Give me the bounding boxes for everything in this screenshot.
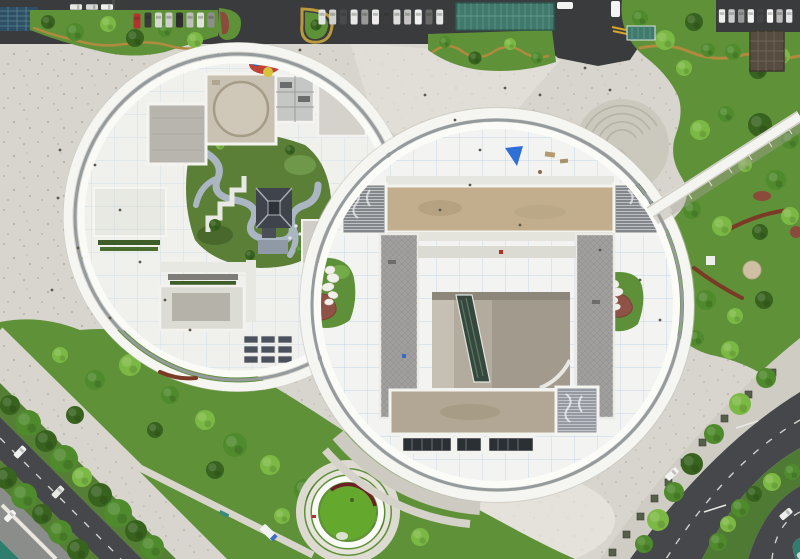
ac-unit: [280, 82, 292, 88]
car: [776, 9, 782, 23]
walkway: [160, 262, 248, 272]
car: [70, 4, 82, 10]
tree: [52, 347, 68, 363]
tree: [72, 467, 92, 487]
garden-light: [284, 155, 316, 175]
tree: [685, 13, 703, 31]
tree: [187, 32, 203, 48]
tree: [727, 308, 743, 324]
corridor-gap: [168, 274, 238, 280]
car: [415, 10, 422, 25]
tree: [223, 433, 247, 457]
car: [361, 10, 368, 25]
tree: [690, 120, 710, 140]
round-platform: [743, 261, 761, 279]
tree: [681, 453, 703, 475]
skylight-strips: [402, 437, 534, 452]
car: [340, 10, 347, 25]
atrium-wall-shadow: [432, 292, 570, 300]
roof-grid: [94, 188, 166, 236]
south-roof-block: [160, 286, 244, 330]
furniture: [294, 224, 297, 227]
tree: [100, 16, 116, 32]
red-marker: [499, 250, 503, 254]
tree: [32, 504, 52, 524]
shrub: [350, 498, 354, 502]
tree: [161, 386, 179, 404]
pavilion-terrace: [258, 240, 288, 254]
hedge-row: [100, 247, 158, 251]
tree: [721, 341, 739, 359]
h-roof-structure: [342, 176, 658, 452]
garden-tree: [209, 219, 221, 231]
central-atrium: [432, 292, 570, 388]
tree: [206, 461, 224, 479]
atrium-ledge: [432, 300, 454, 388]
mechanical-roof-block: [276, 76, 314, 122]
car: [166, 13, 173, 28]
car: [329, 10, 336, 25]
small-canopy: [627, 26, 655, 40]
tree: [729, 393, 751, 415]
helipad-circle: [214, 82, 268, 136]
ac-unit: [298, 96, 310, 102]
car: [404, 10, 411, 25]
car: [176, 13, 183, 28]
mural-yellow: [263, 67, 273, 77]
car: [383, 10, 390, 25]
tree: [66, 23, 84, 41]
tree: [48, 520, 72, 544]
tree: [676, 60, 692, 76]
car: [208, 13, 215, 28]
tree: [725, 44, 741, 60]
tree: [701, 43, 715, 57]
car: [187, 13, 194, 28]
right-circle-building: [300, 108, 694, 502]
car: [319, 10, 326, 25]
concrete-stain: [418, 200, 462, 216]
tree: [763, 473, 781, 491]
car: [351, 10, 358, 25]
tree: [746, 486, 762, 502]
tree: [469, 52, 482, 65]
car: [155, 13, 162, 28]
white-van: [611, 1, 620, 17]
tree: [696, 290, 716, 310]
concrete-stain: [440, 404, 500, 420]
hedge-row: [98, 240, 160, 245]
tree: [647, 509, 669, 531]
tree: [85, 370, 105, 390]
debris: [538, 170, 542, 174]
car: [436, 10, 443, 25]
garden-tree: [285, 145, 295, 155]
pavilion-crown: [268, 201, 280, 215]
tree: [195, 410, 215, 430]
tree: [720, 516, 736, 532]
car: [197, 13, 204, 28]
cross-walkway: [418, 246, 576, 258]
pavilion-annex: [262, 228, 276, 238]
car: [145, 13, 152, 28]
tree: [439, 36, 451, 48]
red-car: [134, 14, 141, 29]
tree: [752, 224, 768, 240]
car: [372, 10, 379, 25]
tree: [504, 38, 516, 50]
tree: [0, 395, 20, 415]
west-annex-roof: [94, 188, 166, 251]
tree: [104, 499, 132, 527]
hedge-row: [170, 281, 236, 285]
tree: [11, 483, 37, 509]
tree: [781, 207, 799, 225]
blue-tarp-small: [402, 354, 406, 358]
vent: [212, 80, 220, 85]
red-cart: [312, 515, 316, 518]
tree: [35, 430, 57, 452]
tree: [635, 535, 653, 553]
tree: [41, 15, 55, 29]
louver-block-s: [556, 387, 598, 434]
car: [786, 9, 792, 23]
tree: [140, 535, 164, 559]
tree: [755, 291, 773, 309]
tree: [664, 482, 684, 502]
car: [426, 10, 433, 25]
car: [101, 4, 113, 10]
aerial-photo-canvas: Aerial top-down view of a cultural compl…: [0, 0, 800, 559]
tree: [718, 106, 734, 122]
tree: [784, 464, 800, 480]
white-sculpture: [336, 532, 348, 540]
tree: [147, 422, 163, 438]
tree: [709, 533, 727, 551]
car: [738, 9, 744, 23]
tree: [766, 170, 786, 190]
tree: [260, 455, 280, 475]
car: [767, 9, 773, 23]
tree: [15, 410, 41, 436]
garden-tree: [245, 250, 255, 260]
aerial-photo: Aerial top-down view of a cultural compl…: [0, 0, 800, 559]
tree: [50, 445, 78, 473]
tree: [655, 30, 675, 50]
tree: [704, 424, 724, 444]
car: [728, 9, 734, 23]
furniture: [288, 236, 291, 239]
car: [748, 9, 754, 23]
tree: [126, 29, 144, 47]
tree: [274, 508, 290, 524]
tree: [66, 406, 84, 424]
roof-block-center: [172, 293, 230, 321]
white-van: [557, 2, 573, 9]
red-shrubs: [753, 191, 771, 201]
car: [86, 4, 98, 10]
white-platform: [706, 256, 715, 265]
tree: [411, 528, 429, 546]
car: [757, 9, 763, 23]
car: [393, 10, 400, 25]
helipad-roof-block: [206, 74, 276, 144]
concrete-stain: [514, 205, 566, 219]
tree: [756, 368, 776, 388]
tree: [531, 52, 543, 64]
material-pallet: [560, 159, 568, 164]
car: [719, 9, 725, 23]
tree: [632, 10, 648, 26]
tree: [712, 216, 732, 236]
tree: [731, 499, 749, 517]
louver-units: [244, 336, 292, 363]
